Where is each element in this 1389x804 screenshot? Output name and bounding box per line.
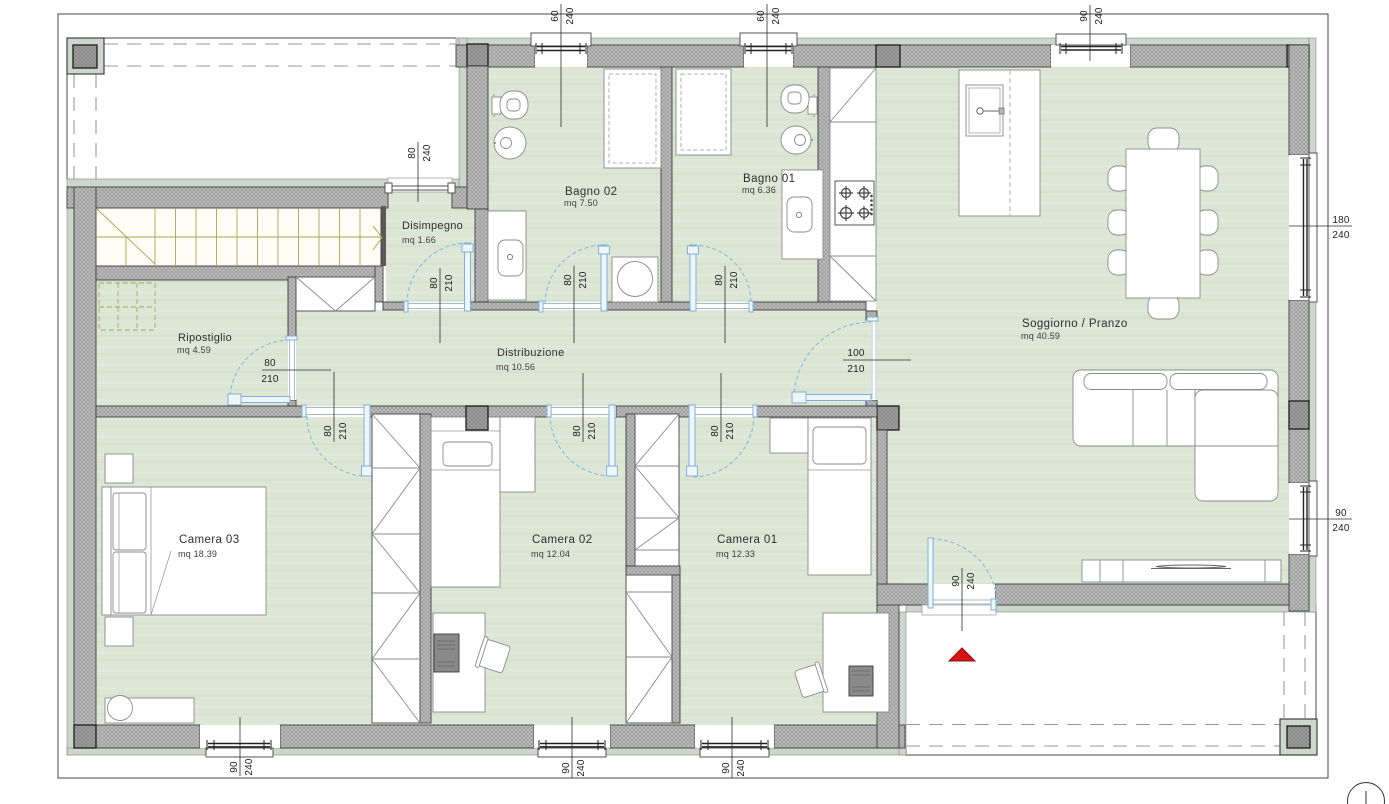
svg-text:mq 10.56: mq 10.56 [496, 362, 535, 372]
svg-text:mq 12.33: mq 12.33 [716, 549, 755, 559]
svg-text:mq 4.59: mq 4.59 [177, 345, 211, 355]
svg-text:210: 210 [338, 422, 349, 440]
svg-text:mq 7.50: mq 7.50 [564, 198, 598, 208]
svg-text:240: 240 [244, 758, 255, 776]
svg-text:80: 80 [429, 277, 440, 289]
svg-text:80: 80 [264, 358, 276, 369]
svg-text:80: 80 [710, 425, 721, 437]
svg-text:Ripostiglio: Ripostiglio [178, 332, 232, 344]
svg-text:180: 180 [1332, 215, 1350, 226]
svg-text:60: 60 [550, 10, 561, 22]
svg-text:Soggiorno / Pranzo: Soggiorno / Pranzo [1022, 318, 1128, 330]
svg-text:Bagno 02: Bagno 02 [565, 186, 617, 198]
svg-text:210: 210 [729, 271, 740, 289]
svg-text:60: 60 [756, 10, 767, 22]
svg-text:Camera 02: Camera 02 [532, 534, 593, 546]
svg-text:80: 80 [407, 147, 418, 159]
svg-text:mq 1.66: mq 1.66 [402, 235, 436, 245]
svg-text:90: 90 [229, 761, 240, 773]
svg-text:Camera 03: Camera 03 [179, 534, 240, 546]
svg-text:210: 210 [847, 364, 865, 375]
svg-text:240: 240 [736, 759, 747, 777]
svg-text:90: 90 [721, 762, 732, 774]
svg-text:90: 90 [951, 575, 962, 587]
svg-text:mq 6.36: mq 6.36 [742, 185, 776, 195]
svg-text:90: 90 [1079, 10, 1090, 22]
svg-text:Bagno 01: Bagno 01 [743, 173, 795, 185]
svg-text:Camera 01: Camera 01 [717, 534, 778, 546]
svg-text:100: 100 [847, 348, 865, 359]
svg-text:240: 240 [1094, 7, 1105, 25]
svg-text:210: 210 [444, 274, 455, 292]
svg-text:240: 240 [1332, 230, 1350, 241]
svg-text:mq 40.59: mq 40.59 [1021, 331, 1060, 341]
svg-text:240: 240 [565, 7, 576, 25]
svg-text:240: 240 [771, 7, 782, 25]
svg-text:mq 12.04: mq 12.04 [531, 549, 570, 559]
svg-text:80: 80 [323, 425, 334, 437]
svg-text:240: 240 [422, 144, 433, 162]
svg-text:210: 210 [725, 422, 736, 440]
svg-text:80: 80 [563, 274, 574, 286]
svg-text:mq 18.39: mq 18.39 [178, 549, 217, 559]
svg-text:210: 210 [578, 271, 589, 289]
svg-text:80: 80 [572, 425, 583, 437]
svg-text:240: 240 [966, 572, 977, 590]
svg-text:240: 240 [576, 759, 587, 777]
svg-text:80: 80 [714, 274, 725, 286]
svg-text:90: 90 [1335, 508, 1347, 519]
svg-text:210: 210 [587, 422, 598, 440]
svg-text:210: 210 [261, 374, 279, 385]
svg-text:90: 90 [561, 762, 572, 774]
svg-text:240: 240 [1332, 523, 1350, 534]
svg-text:Distribuzione: Distribuzione [497, 347, 564, 359]
svg-text:Disimpegno: Disimpegno [402, 220, 463, 232]
